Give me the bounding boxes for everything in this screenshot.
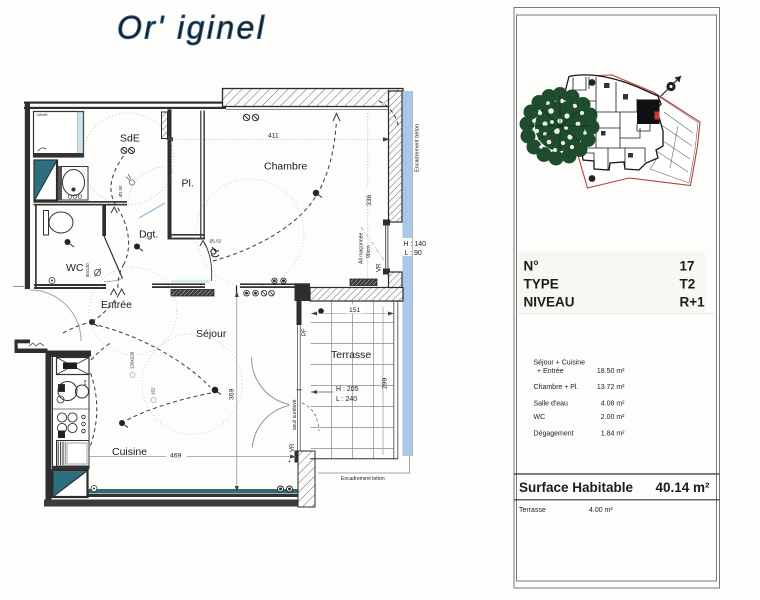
svg-text:VR: VR	[377, 263, 383, 272]
svg-text:Pl.: Pl.	[182, 178, 194, 190]
svg-text:152: 152	[151, 387, 156, 395]
svg-text:VR: VR	[290, 443, 296, 452]
svg-text:Dégagement: Dégagement	[534, 431, 574, 438]
svg-text:Encadrement béton: Encadrement béton	[415, 124, 421, 172]
svg-text:13.72 m²: 13.72 m²	[597, 384, 625, 391]
svg-text:SdE: SdE	[120, 133, 140, 145]
svg-text:2.00 m²: 2.00 m²	[601, 414, 625, 421]
svg-text:N°: N°	[524, 259, 539, 274]
svg-text:seuil surélevé: seuil surélevé	[292, 399, 298, 430]
svg-text:+: +	[288, 459, 291, 465]
svg-text:40.14 m²: 40.14 m²	[655, 480, 710, 495]
svg-text:Terrasse: Terrasse	[331, 349, 371, 361]
svg-text:4.08 m²: 4.08 m²	[601, 401, 625, 408]
svg-text:TYPE: TYPE	[524, 277, 559, 292]
svg-text:18.50 m²: 18.50 m²	[597, 368, 625, 375]
svg-text:+ Entrée: + Entrée	[537, 368, 564, 375]
svg-text:PF: PF	[302, 328, 308, 336]
svg-text:Surface Habitable: Surface Habitable	[519, 480, 634, 495]
svg-text:WC: WC	[534, 414, 546, 421]
svg-text:Cuisine: Cuisine	[112, 446, 147, 458]
svg-text:469: 469	[170, 453, 182, 460]
svg-text:Or' iginel: Or' iginel	[117, 10, 266, 46]
svg-text:R+1: R+1	[680, 295, 706, 310]
svg-text:Entrée: Entrée	[101, 299, 132, 311]
svg-text:Salle d'eau: Salle d'eau	[534, 401, 569, 408]
svg-text:120x226: 120x226	[130, 351, 135, 369]
svg-text:17: 17	[680, 259, 695, 274]
svg-text:NIVEAU: NIVEAU	[524, 295, 575, 310]
svg-text:T2: T2	[680, 277, 696, 292]
svg-text:369: 369	[229, 388, 236, 400]
svg-text:411: 411	[268, 133, 279, 140]
svg-text:H : 140: H : 140	[404, 241, 427, 248]
svg-text:Ø1.53: Ø1.53	[210, 239, 222, 244]
svg-text:151: 151	[349, 307, 361, 314]
svg-text:L : 240: L : 240	[336, 396, 357, 403]
svg-text:4.00 m²: 4.00 m²	[589, 507, 613, 514]
svg-text:Chambre: Chambre	[264, 161, 307, 173]
svg-text:Chambre + Pl.: Chambre + Pl.	[534, 384, 579, 391]
svg-text:All maçonnée: All maçonnée	[359, 232, 365, 264]
svg-text:90cm: 90cm	[366, 245, 372, 258]
svg-text:1.84 m²: 1.84 m²	[601, 431, 625, 438]
svg-text:Encadrement béton: Encadrement béton	[341, 476, 385, 482]
svg-text:80x130: 80x130	[85, 263, 90, 277]
svg-text:336: 336	[366, 194, 373, 206]
svg-text:L : 90: L : 90	[405, 250, 422, 257]
svg-text:WC: WC	[66, 262, 84, 274]
svg-text:H : 205: H : 205	[336, 386, 359, 393]
svg-text:Séjour + Cuisine: Séjour + Cuisine	[534, 360, 586, 367]
svg-text:299: 299	[382, 377, 389, 389]
svg-text:140x90: 140x90	[36, 113, 48, 117]
svg-text:Dgt.: Dgt.	[139, 229, 158, 241]
svg-text:FR: FR	[83, 380, 88, 385]
svg-text:Ø1.50: Ø1.50	[118, 185, 123, 197]
svg-text:Terrasse: Terrasse	[519, 507, 546, 514]
